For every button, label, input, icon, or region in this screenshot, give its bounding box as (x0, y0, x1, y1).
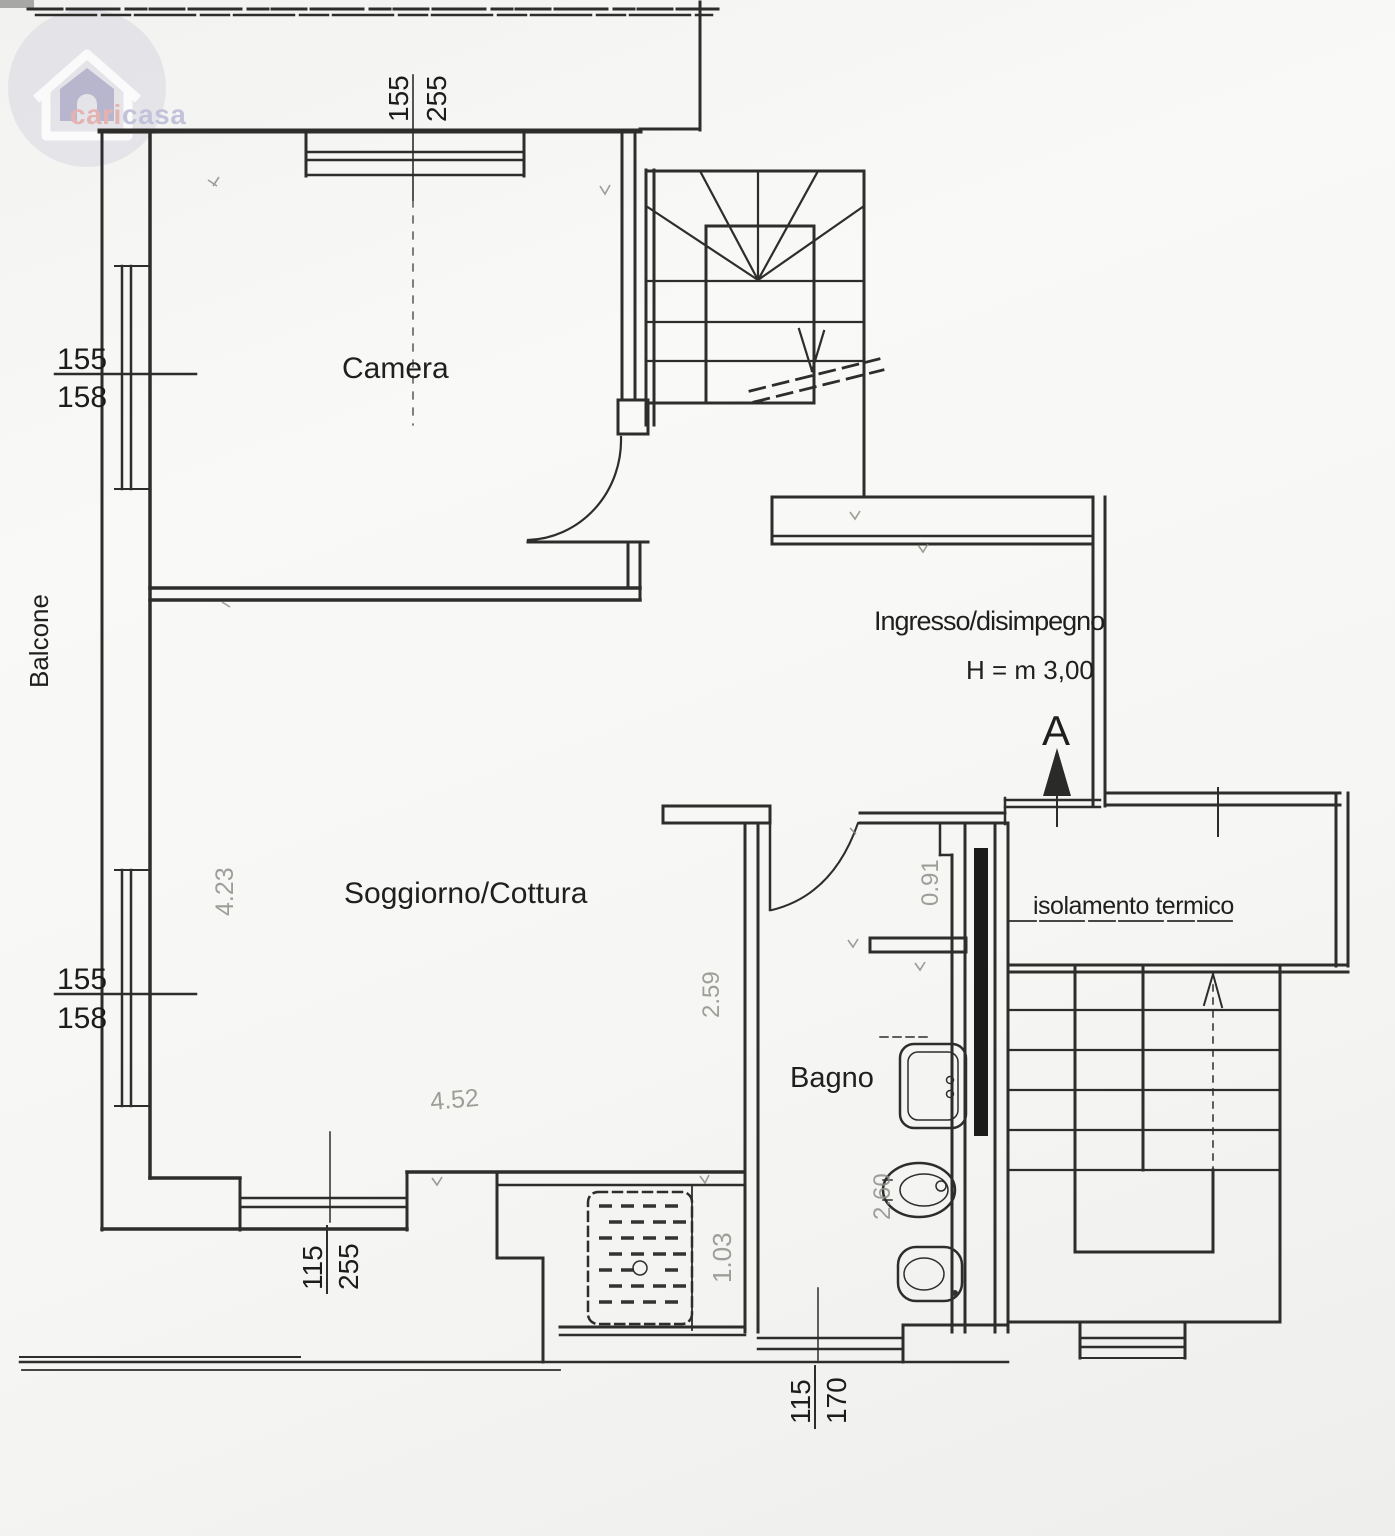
camera-door-arc (528, 437, 621, 540)
window-left-upper (55, 266, 196, 489)
shower-hatch (599, 1206, 686, 1302)
room-label-ingresso: Ingresso/disimpegno (874, 606, 1104, 636)
stairwell-top (646, 170, 883, 497)
room-label-bagno: Bagno (790, 1062, 874, 1094)
stair-up-arrow (1204, 974, 1222, 1168)
left-wall (102, 131, 150, 1230)
divider-wall (150, 588, 640, 600)
room-label-soggiorno: Soggiorno/Cottura (344, 877, 588, 910)
camera-walls (528, 131, 648, 600)
sink (900, 1044, 966, 1128)
scan-smudge (0, 0, 34, 8)
ceiling-height-label: H = m 3,00 (966, 655, 1094, 685)
entry-wall (663, 798, 1100, 824)
room-label-camera: Camera (342, 352, 449, 385)
pencil-soggiorno-bottom: 4.52 (429, 1084, 480, 1116)
stair-treads-top (646, 281, 864, 361)
section-letter-label: A (1042, 707, 1070, 754)
outer-walls-right (1105, 788, 1348, 966)
dim-top-width: 155 (383, 75, 414, 122)
pencil-corridor: 1.03 (707, 1232, 737, 1283)
dim-bagno-width: 115 (785, 1379, 816, 1424)
dim-left-upper-width: 155 (57, 343, 107, 376)
dim-left-lower-height: 158 (57, 1002, 107, 1035)
logo: cari casa (8, 9, 186, 167)
window-bagno (758, 1325, 1008, 1362)
floorplan-drawing: cari casa (0, 0, 1395, 1536)
right-staircase (1008, 965, 1348, 1358)
shower-tray (588, 1186, 692, 1330)
dim-left-lower-width: 155 (57, 963, 107, 996)
bottom-walls (102, 1172, 745, 1362)
bagno-walls (745, 823, 1008, 1332)
insulation-label: isolamento termico (1033, 892, 1234, 920)
scan-marks (208, 177, 928, 1185)
stair-window (1080, 1322, 1185, 1358)
section-arrow-triangle (1043, 748, 1071, 796)
room-label-balcone: Balcone (24, 594, 54, 688)
floorplan-scan-page: cari casa (0, 0, 1395, 1536)
logo-text-cari: cari (70, 99, 122, 130)
pencil-soggiorno-left: 4.23 (211, 867, 239, 916)
logo-text-casa: casa (122, 99, 186, 130)
bagno-door-arc (772, 823, 858, 910)
bottom-scan-lines (20, 1357, 1008, 1370)
section-arrow (1043, 748, 1071, 826)
pencil-bagno-door: 0.91 (917, 859, 944, 906)
pencil-soggiorno-right: 2.59 (698, 971, 725, 1018)
dim-left-upper-height: 158 (57, 381, 107, 414)
dim-top-height: 255 (421, 75, 452, 122)
dim-bottom-height: 255 (333, 1243, 364, 1290)
dimension-labels: 155 255 155 158 155 158 115 255 115 170 (57, 75, 852, 1428)
dim-bottom-width: 115 (297, 1245, 328, 1290)
room-labels: Camera Soggiorno/Cottura Bagno Ingresso/… (24, 352, 1234, 1094)
pencil-bagno-right: 2.60 (869, 1173, 896, 1220)
dim-bagno-height: 170 (821, 1377, 852, 1424)
